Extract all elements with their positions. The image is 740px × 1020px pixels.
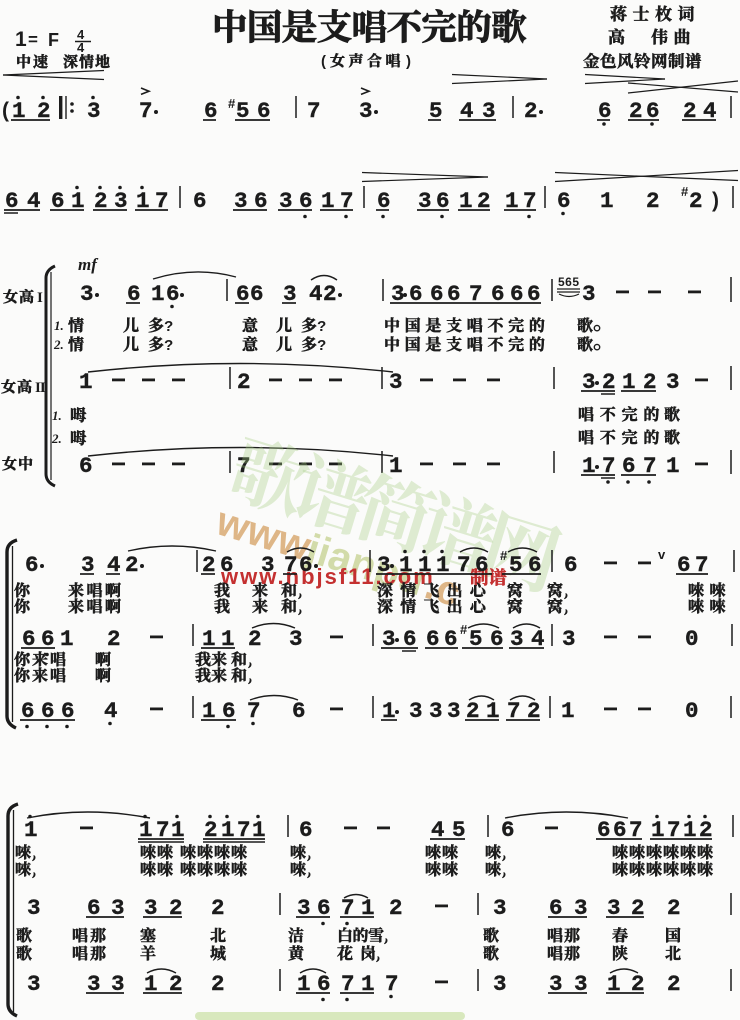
svg-text:3: 3 [429,698,443,724]
svg-text:#: # [460,622,468,637]
svg-text:565: 565 [558,275,580,289]
svg-text:6: 6 [557,188,571,214]
svg-text:2: 2 [211,895,225,921]
svg-text:#: # [500,548,508,563]
svg-text:6: 6 [25,552,39,578]
svg-text:6: 6 [220,552,234,578]
svg-text:mf: mf [78,255,99,274]
svg-text:2: 2 [125,552,139,578]
svg-text:1.: 1. [52,408,62,423]
svg-text:4: 4 [77,40,85,55]
svg-text:1: 1 [666,453,680,479]
svg-text:(: ( [321,53,326,70]
svg-text:3: 3 [409,698,423,724]
svg-text:1: 1 [389,453,403,479]
svg-text:2: 2 [646,188,660,214]
svg-text:4: 4 [104,698,118,724]
svg-text:3: 3 [666,369,680,395]
svg-text:3: 3 [289,626,303,652]
svg-text:3: 3 [562,626,576,652]
svg-text:2: 2 [667,971,681,997]
svg-text:): ) [406,53,411,70]
svg-text:II: II [35,380,46,396]
svg-text:0: 0 [685,698,699,724]
svg-text:1: 1 [24,817,38,843]
svg-text:6: 6 [292,698,306,724]
svg-text:3: 3 [389,369,403,395]
svg-text:2: 2 [689,188,703,214]
svg-text:1: 1 [151,281,165,307]
svg-text:1: 1 [60,626,74,652]
svg-text:1.: 1. [54,318,64,333]
svg-text:2: 2 [524,98,538,124]
svg-text:#: # [228,96,236,111]
svg-text:2.: 2. [53,337,64,352]
svg-text:6: 6 [564,552,578,578]
svg-text:6: 6 [193,188,207,214]
svg-text:1: 1 [600,188,614,214]
svg-text:#: # [681,184,689,199]
svg-text:?: ? [317,337,326,354]
svg-text:6: 6 [166,281,180,307]
svg-text:2: 2 [237,369,251,395]
svg-text:I: I [37,290,43,306]
svg-text:4: 4 [309,281,323,307]
svg-text:7: 7 [307,98,321,124]
svg-text:3: 3 [87,98,101,124]
svg-text:v: v [658,547,666,562]
svg-text:?: ? [164,318,173,335]
svg-text:1: 1 [79,369,93,395]
svg-text:6: 6 [501,817,515,843]
svg-text:2: 2 [389,895,403,921]
svg-text:?: ? [317,318,326,335]
svg-text:F: F [48,30,59,50]
svg-text:3: 3 [261,552,275,578]
svg-text:1: 1 [561,698,575,724]
svg-text:6: 6 [299,552,313,578]
svg-text:7: 7 [247,698,261,724]
svg-text:2: 2 [248,626,262,652]
svg-text:6: 6 [79,453,93,479]
svg-text:2: 2 [107,626,121,652]
svg-text:?: ? [164,337,173,354]
svg-text:2: 2 [667,895,681,921]
svg-text:0: 0 [685,626,699,652]
svg-text:2: 2 [323,281,337,307]
svg-text:6: 6 [299,817,313,843]
svg-text:6: 6 [250,281,264,307]
svg-text:3: 3 [359,98,373,124]
svg-text:7: 7 [139,98,153,124]
svg-text:3: 3 [447,698,461,724]
svg-text:(: ( [2,99,9,122]
svg-text:3: 3 [80,281,94,307]
svg-text:2.: 2. [51,431,62,446]
svg-text:3: 3 [27,971,41,997]
svg-text:2: 2 [211,971,225,997]
svg-text:3: 3 [27,895,41,921]
svg-text:3: 3 [493,971,507,997]
svg-text:3: 3 [493,895,507,921]
svg-text:1: 1 [15,28,29,51]
svg-text:3: 3 [582,281,596,307]
svg-text:): ) [712,189,719,212]
svg-text:=: = [28,30,38,49]
svg-text:7: 7 [385,971,399,997]
